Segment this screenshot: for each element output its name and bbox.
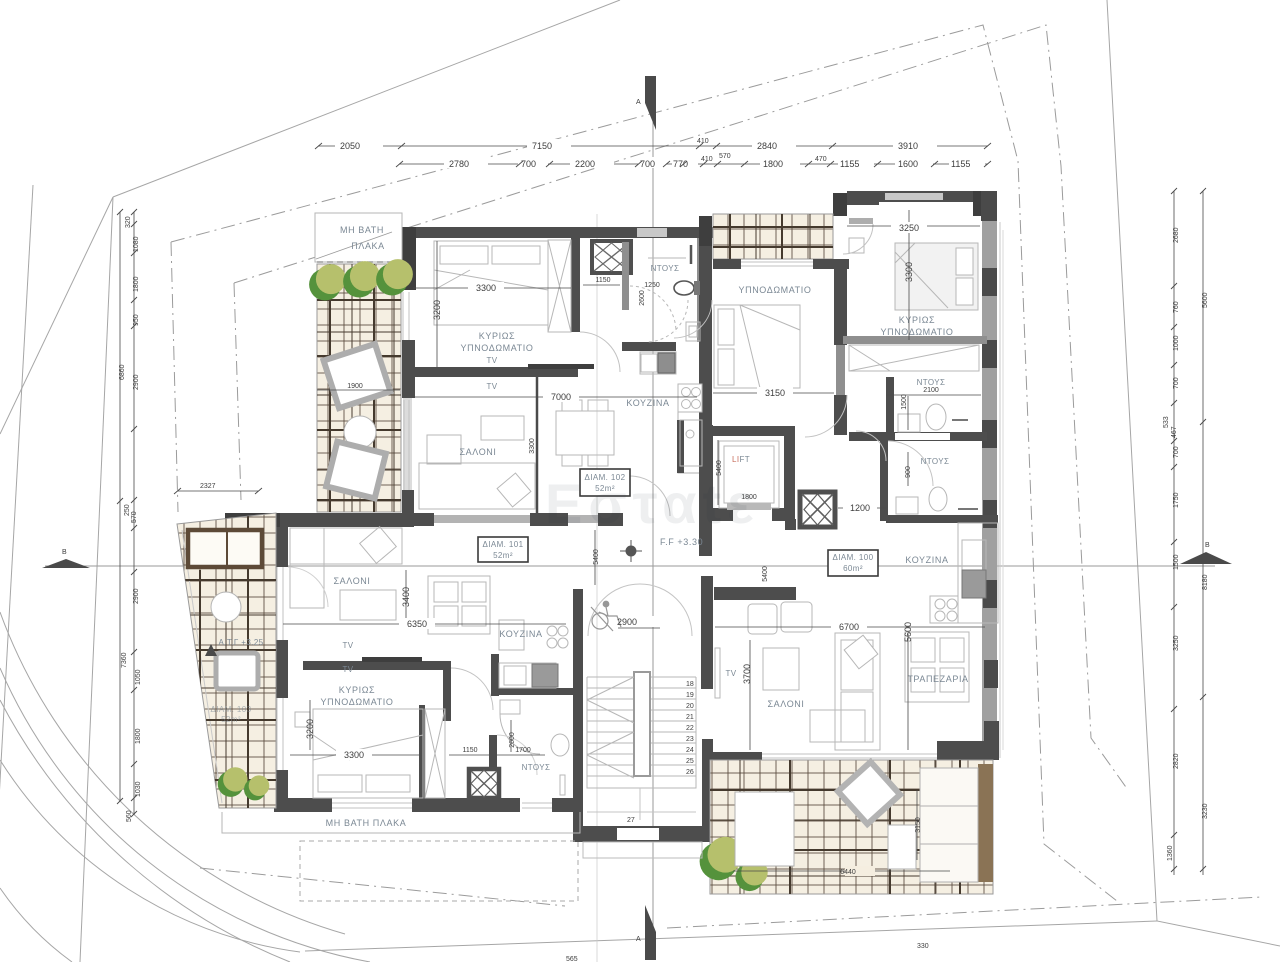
svg-text:TV: TV — [486, 382, 497, 391]
svg-text:25: 25 — [686, 758, 694, 765]
svg-text:Εσταtε: Εσταtε — [545, 472, 760, 535]
svg-text:ΔΙΑΜ. 103: ΔΙΑΜ. 103 — [211, 705, 252, 714]
svg-text:TV: TV — [342, 641, 353, 650]
svg-text:26: 26 — [686, 769, 694, 776]
svg-text:5600: 5600 — [903, 622, 913, 642]
svg-text:1050: 1050 — [135, 669, 142, 685]
svg-text:52m²: 52m² — [493, 551, 513, 560]
svg-text:533: 533 — [1163, 416, 1170, 428]
svg-text:1155: 1155 — [951, 159, 970, 169]
svg-text:LIFT: LIFT — [732, 455, 750, 464]
svg-text:52m²: 52m² — [221, 715, 241, 724]
svg-text:7000: 7000 — [551, 392, 571, 402]
svg-text:6440: 6440 — [840, 869, 856, 876]
svg-text:1900: 1900 — [347, 383, 363, 390]
svg-text:22: 22 — [686, 725, 694, 732]
svg-text:B: B — [1205, 542, 1210, 549]
svg-text:3230: 3230 — [1202, 803, 1209, 819]
svg-text:ΝΤΟΥΣ: ΝΤΟΥΣ — [921, 457, 950, 466]
svg-text:3300: 3300 — [344, 750, 364, 760]
svg-text:ΝΤΟΥΣ: ΝΤΟΥΣ — [522, 763, 551, 772]
svg-text:7150: 7150 — [532, 141, 552, 151]
svg-text:3250: 3250 — [1173, 635, 1180, 651]
svg-text:5400: 5400 — [762, 566, 769, 582]
svg-text:1800: 1800 — [763, 159, 783, 169]
svg-text:570: 570 — [131, 511, 138, 523]
svg-text:TV: TV — [725, 669, 736, 678]
svg-text:410: 410 — [701, 156, 713, 163]
svg-text:ΣΑΛΟΝΙ: ΣΑΛΟΝΙ — [334, 576, 371, 586]
svg-text:ΠΛΑΚΑ: ΠΛΑΚΑ — [351, 241, 385, 251]
svg-text:700: 700 — [1173, 377, 1180, 389]
svg-text:2900: 2900 — [617, 617, 637, 627]
svg-text:Α.Τ.Γ +3.25: Α.Τ.Γ +3.25 — [218, 638, 263, 647]
svg-text:60m²: 60m² — [843, 564, 863, 573]
svg-text:1200: 1200 — [850, 503, 870, 513]
svg-text:3700: 3700 — [742, 664, 752, 684]
svg-text:ΝΤΟΥΣ: ΝΤΟΥΣ — [651, 264, 680, 273]
svg-text:ΥΠΝΟΔΩΜΑΤΙΟ: ΥΠΝΟΔΩΜΑΤΙΟ — [461, 343, 534, 353]
svg-text:ΚΥΡΙΩΣ: ΚΥΡΙΩΣ — [339, 685, 375, 695]
svg-text:320: 320 — [125, 216, 132, 228]
svg-text:6860: 6860 — [119, 364, 126, 380]
svg-text:470: 470 — [815, 156, 827, 163]
svg-text:A: A — [636, 99, 641, 106]
svg-text:2680: 2680 — [1173, 227, 1180, 243]
svg-text:23: 23 — [686, 736, 694, 743]
svg-text:565: 565 — [566, 956, 578, 962]
svg-text:2600: 2600 — [509, 732, 516, 748]
svg-text:330: 330 — [917, 943, 929, 950]
svg-text:2200: 2200 — [575, 159, 595, 169]
svg-text:24: 24 — [686, 747, 694, 754]
svg-text:3150: 3150 — [765, 388, 785, 398]
svg-text:2600: 2600 — [639, 290, 646, 306]
svg-text:1150: 1150 — [462, 747, 477, 754]
svg-text:3300: 3300 — [529, 438, 536, 454]
svg-text:2820: 2820 — [1173, 753, 1180, 769]
svg-text:1800: 1800 — [133, 276, 140, 292]
svg-text:ΤΡΑΠΕΖΑΡΙΑ: ΤΡΑΠΕΖΑΡΙΑ — [907, 674, 968, 684]
svg-text:3200: 3200 — [305, 719, 315, 739]
svg-text:2900: 2900 — [133, 588, 140, 604]
svg-text:18: 18 — [686, 681, 694, 688]
svg-text:2100: 2100 — [923, 387, 939, 394]
svg-text:3300: 3300 — [904, 262, 914, 282]
svg-text:1700: 1700 — [515, 747, 531, 754]
svg-text:ΝΤΟΥΣ: ΝΤΟΥΣ — [917, 378, 946, 387]
svg-text:20: 20 — [686, 703, 694, 710]
svg-text:19: 19 — [686, 692, 694, 699]
svg-text:1500: 1500 — [901, 394, 908, 410]
svg-text:6350: 6350 — [407, 619, 427, 629]
svg-text:950: 950 — [133, 314, 140, 326]
svg-text:21: 21 — [686, 714, 694, 721]
svg-text:1750: 1750 — [1173, 492, 1180, 508]
svg-text:250: 250 — [124, 504, 131, 516]
svg-text:2840: 2840 — [757, 141, 777, 151]
svg-text:1150: 1150 — [595, 277, 610, 284]
svg-text:1000: 1000 — [1173, 335, 1180, 351]
svg-text:1360: 1360 — [1167, 845, 1174, 861]
svg-text:ΥΠΝΟΔΩΜΑΤΙΟ: ΥΠΝΟΔΩΜΑΤΙΟ — [739, 285, 812, 295]
svg-text:1800: 1800 — [135, 728, 142, 744]
svg-text:5600: 5600 — [1202, 292, 1209, 308]
svg-text:ΜΗ ΒΑΤΗ ΠΛΑΚΑ: ΜΗ ΒΑΤΗ ΠΛΑΚΑ — [326, 818, 407, 828]
svg-text:700: 700 — [1173, 446, 1180, 458]
svg-text:3400: 3400 — [401, 587, 411, 607]
svg-text:1030: 1030 — [135, 781, 142, 797]
svg-text:1080: 1080 — [133, 236, 140, 252]
svg-text:1600: 1600 — [898, 159, 918, 169]
svg-text:TV: TV — [486, 356, 497, 365]
svg-text:3250: 3250 — [899, 223, 919, 233]
svg-text:ΚΟΥΖΙΝΑ: ΚΟΥΖΙΝΑ — [626, 398, 669, 408]
svg-text:8180: 8180 — [1202, 574, 1209, 590]
svg-text:2780: 2780 — [449, 159, 469, 169]
svg-text:TV: TV — [342, 665, 353, 674]
svg-text:760: 760 — [1173, 301, 1180, 313]
svg-text:770: 770 — [673, 159, 688, 169]
svg-text:6700: 6700 — [839, 622, 859, 632]
svg-text:3300: 3300 — [476, 283, 496, 293]
svg-text:1500: 1500 — [1173, 554, 1180, 570]
svg-text:3150: 3150 — [915, 817, 922, 833]
svg-text:ΥΠΝΟΔΩΜΑΤΙΟ: ΥΠΝΟΔΩΜΑΤΙΟ — [321, 697, 394, 707]
svg-text:A: A — [636, 936, 641, 943]
svg-text:900: 900 — [905, 466, 912, 478]
svg-text:700: 700 — [521, 159, 536, 169]
svg-text:410: 410 — [697, 138, 709, 145]
svg-text:5400: 5400 — [593, 549, 600, 565]
svg-text:ΥΠΝΟΔΩΜΑΤΙΟ: ΥΠΝΟΔΩΜΑΤΙΟ — [881, 327, 954, 337]
svg-text:ΔΙΑΜ. 100: ΔΙΑΜ. 100 — [833, 553, 874, 562]
svg-text:ΔΙΑΜ. 101: ΔΙΑΜ. 101 — [483, 540, 524, 549]
svg-text:1155: 1155 — [840, 159, 859, 169]
svg-text:ΚΥΡΙΩΣ: ΚΥΡΙΩΣ — [479, 331, 515, 341]
svg-text:2327: 2327 — [200, 483, 216, 490]
svg-text:ΚΟΥΖΙΝΑ: ΚΟΥΖΙΝΑ — [499, 629, 542, 639]
svg-text:ΣΑΛΟΝΙ: ΣΑΛΟΝΙ — [768, 699, 805, 709]
svg-text:B: B — [62, 549, 67, 556]
svg-text:ΚΟΥΖΙΝΑ: ΚΟΥΖΙΝΑ — [905, 555, 948, 565]
svg-text:3200: 3200 — [432, 300, 442, 320]
svg-text:467: 467 — [1171, 426, 1178, 438]
svg-text:1250: 1250 — [644, 282, 660, 289]
svg-text:7360: 7360 — [121, 652, 128, 668]
svg-text:ΚΥΡΙΩΣ: ΚΥΡΙΩΣ — [899, 315, 935, 325]
svg-text:ΜΗ ΒΑΤΗ: ΜΗ ΒΑΤΗ — [340, 225, 384, 235]
svg-text:2050: 2050 — [340, 141, 360, 151]
svg-text:700: 700 — [640, 159, 655, 169]
svg-text:570: 570 — [719, 153, 731, 160]
svg-text:ΣΑΛΟΝΙ: ΣΑΛΟΝΙ — [460, 447, 497, 457]
svg-text:F.F +3.30: F.F +3.30 — [660, 537, 703, 547]
svg-text:2900: 2900 — [133, 374, 140, 390]
svg-text:27: 27 — [627, 817, 635, 824]
svg-text:3910: 3910 — [898, 141, 918, 151]
